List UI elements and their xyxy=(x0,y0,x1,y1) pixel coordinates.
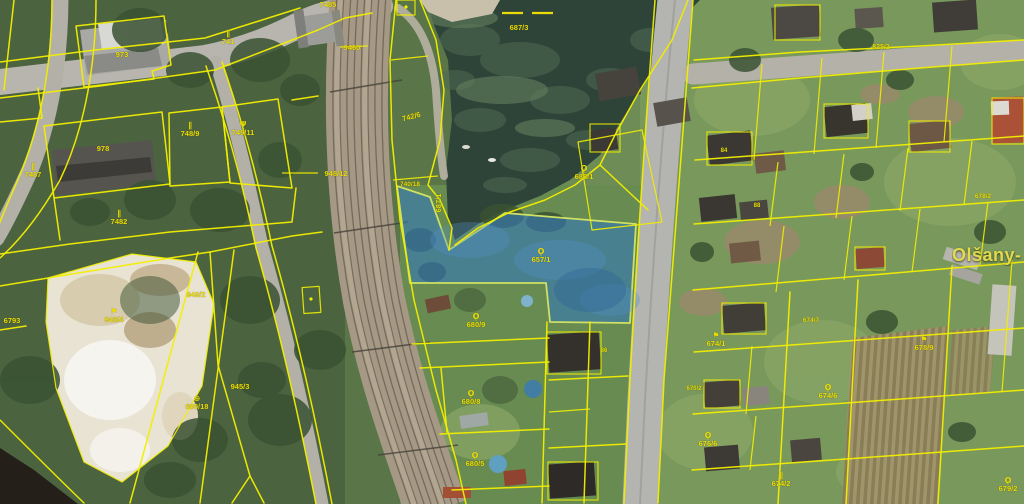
garden-symbol-icon: Ǫ xyxy=(705,431,712,440)
parcel-label: 680/18 xyxy=(186,402,209,411)
meadow-symbol-icon: ∥ xyxy=(226,29,230,38)
garden-symbol-icon: Ǫ xyxy=(1005,476,1012,485)
parcel-label: 973 xyxy=(116,50,129,59)
parcel-label: 678/9 xyxy=(915,343,934,352)
garden-symbol-icon: Ǫ xyxy=(472,451,479,460)
meadow-symbol-icon: ∥ xyxy=(117,209,121,218)
parcel-label: 948/12 xyxy=(325,169,348,178)
parcel-label: 7485 xyxy=(320,0,337,9)
garden-symbol-icon: Ǫ xyxy=(473,312,480,321)
parcel-label: 674/1 xyxy=(707,339,726,348)
parcel-label: 680/8 xyxy=(462,397,481,406)
meadow-symbol-icon: ∥ xyxy=(31,162,35,171)
parcel-label: 678/2 xyxy=(975,193,992,200)
parcel-label: 7487 xyxy=(25,170,42,179)
parcel-label: 679/2 xyxy=(999,484,1018,493)
garden-symbol-icon: Ǫ xyxy=(581,164,588,173)
parcel-label: 9460 xyxy=(344,43,361,52)
parcel-label: 7482 xyxy=(111,217,128,226)
garden-symbol-icon: Ǫ xyxy=(538,247,545,256)
parcel-label: 740/18 xyxy=(400,181,420,188)
parcel-label: 688/1 xyxy=(575,172,594,181)
parcel-label: 657/1 xyxy=(532,255,551,264)
parcel-label: 670/2 xyxy=(686,386,702,392)
parcel-label: 825/2 xyxy=(872,44,890,51)
parcel-label: 674/2 xyxy=(772,479,791,488)
flag-symbol-icon: ⚑ xyxy=(110,307,117,316)
parcel-label: 86 xyxy=(601,348,608,354)
parcel-label: 680/9 xyxy=(467,320,486,329)
parcel-label: 88 xyxy=(754,203,761,209)
garden-symbol-icon: Ǫ xyxy=(468,389,475,398)
parcel-label: 674/6 xyxy=(819,391,838,400)
tree-symbol-icon: Ψ xyxy=(240,120,247,129)
parcel-label: 748/9 xyxy=(181,129,200,138)
parcel-label: 949/2 xyxy=(187,290,206,299)
parcel-label: 948/4 xyxy=(105,315,125,324)
parcel-label: 945/3 xyxy=(231,382,250,391)
parcel-label: 84 xyxy=(721,148,728,154)
garden-symbol-icon: Ǫ xyxy=(825,383,832,392)
flag-symbol-icon: ⚑ xyxy=(712,331,719,340)
parcel-label: 978 xyxy=(97,144,110,153)
cadastral-map-viewport[interactable]: 973741∥9787487∥748/9∥749/11Ψ7482∥7485679… xyxy=(0,0,1024,504)
parcel-label: 741 xyxy=(222,37,235,46)
meadow-symbol-icon: ∥ xyxy=(188,121,192,130)
parcel-label: 687/1 xyxy=(434,194,443,213)
parcel-label: 6793 xyxy=(4,316,21,325)
map-canvas[interactable]: 973741∥9787487∥748/9∥749/11Ψ7482∥7485679… xyxy=(0,0,1024,504)
parcel-label: 680/5 xyxy=(466,459,485,468)
flag-symbol-icon: ⚑ xyxy=(920,335,927,344)
parcel-label: 676/6 xyxy=(699,439,718,448)
parcel-label: 687/3 xyxy=(510,23,529,32)
parcel-label: 749/11 xyxy=(232,128,255,137)
parcel-label: 674/7 xyxy=(803,317,820,324)
cross-symbol-icon: ⊕ xyxy=(194,394,201,403)
meadow-symbol-icon: ∥ xyxy=(779,471,783,480)
